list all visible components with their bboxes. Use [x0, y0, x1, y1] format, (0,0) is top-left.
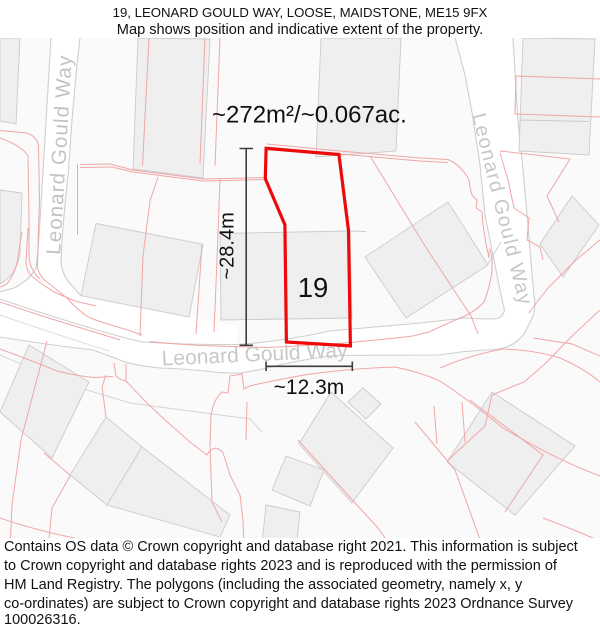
- svg-text:19: 19: [298, 272, 329, 303]
- svg-text:~272m²/~0.067ac.: ~272m²/~0.067ac.: [212, 102, 407, 129]
- svg-text:HM Land Registry. The polygons: HM Land Registry. The polygons (includin…: [4, 577, 523, 593]
- svg-text:~12.3m: ~12.3m: [274, 376, 345, 399]
- svg-text:Map shows position and indicat: Map shows position and indicative extent…: [117, 22, 483, 38]
- svg-text:19, LEONARD GOULD WAY, LOOSE,: 19, LEONARD GOULD WAY, LOOSE, MAIDSTONE,…: [113, 5, 488, 20]
- svg-text:co-ordinates) are subject to C: co-ordinates) are subject to Crown copyr…: [4, 596, 574, 612]
- svg-text:100026316.: 100026316.: [4, 612, 81, 625]
- svg-text:to Crown copyright and databas: to Crown copyright and database rights 2…: [4, 558, 558, 574]
- svg-text:Contains OS data © Crown copyr: Contains OS data © Crown copyright and d…: [4, 539, 578, 555]
- svg-text:~28.4m: ~28.4m: [217, 212, 239, 279]
